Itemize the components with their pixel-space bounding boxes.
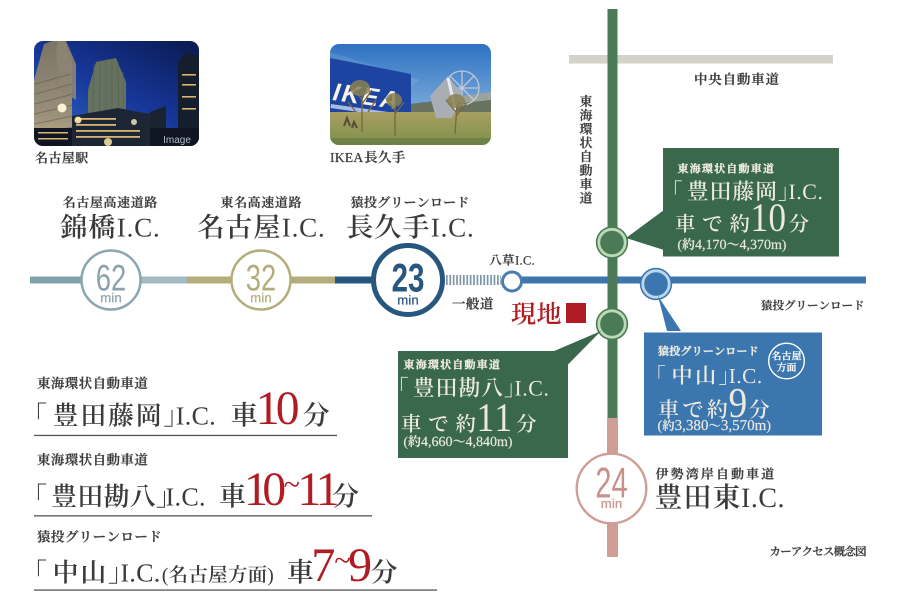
svg-text:Image: Image — [163, 135, 191, 146]
